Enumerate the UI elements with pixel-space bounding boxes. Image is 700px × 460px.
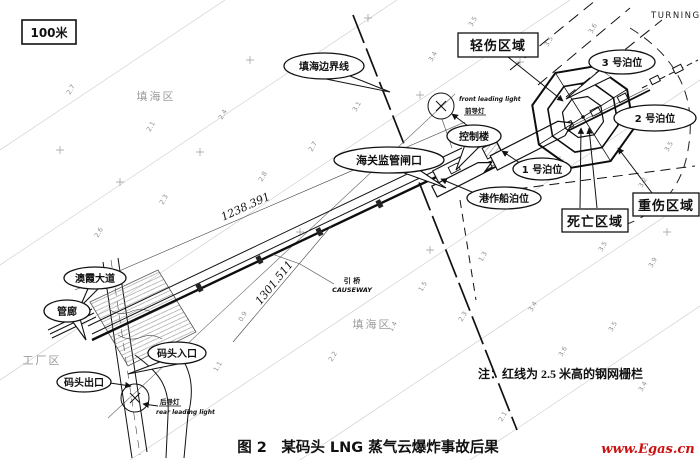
sounding-value: 3.9 — [647, 256, 659, 269]
sounding-value: 2.7 — [65, 83, 77, 96]
area-reclamation-mid: 填海区 — [353, 317, 392, 331]
sounding-value: 2.6 — [93, 226, 105, 239]
callout-wharf-exit: 码头出口 — [64, 376, 104, 389]
survey-cross — [416, 91, 424, 99]
survey-cross — [364, 14, 372, 22]
zone-light-injury: 轻伤区域 — [470, 38, 526, 54]
sounding-value: 3.6 — [557, 345, 569, 358]
site-plan-drawing: front leading light 前导灯 后导灯 rear leading… — [0, 0, 700, 460]
rear-leading-light-label-cn: 后导灯 — [160, 397, 180, 406]
callout-berth-1: 1 号泊位 — [522, 163, 562, 176]
callout-tug-berth: 港作船泊位 — [479, 192, 529, 205]
callout-berth-2: 2 号泊位 — [635, 112, 675, 125]
callout-pipe-rack: 管廊 — [57, 305, 77, 318]
survey-cross — [663, 228, 671, 236]
causeway-label-en: CAUSEWAY — [332, 286, 373, 294]
callout-berth-3: 3 号泊位 — [602, 56, 642, 69]
blast-center — [581, 115, 585, 119]
zone-serious-injury: 重伤区域 — [638, 198, 694, 214]
perimeter-fence-line — [92, 161, 470, 340]
mooring-dolphin — [650, 75, 661, 84]
blast-ring-radial — [555, 73, 583, 117]
survey-cross — [196, 148, 204, 156]
scale-label: 100米 — [30, 25, 68, 40]
rear-leading-light-label-en: rear leading light — [156, 409, 216, 416]
causeway-label-cn: 引 桥 — [344, 276, 361, 285]
front-leading-light-label-cn: 前导灯 — [465, 106, 485, 115]
sounding-value: 2.3 — [457, 310, 469, 323]
sounding-value: 3.4 — [427, 50, 439, 63]
figure-caption: 图 2 某码头 LNG 蒸气云爆炸事故后果 — [237, 438, 499, 456]
sounding-value: 2.1 — [145, 120, 157, 133]
area-reclamation-top: 填海区 — [137, 89, 176, 103]
sounding-value: 3.1 — [351, 100, 363, 113]
sounding-value: 3.6 — [587, 22, 599, 35]
survey-cross — [56, 146, 64, 154]
blast-ring-radial — [583, 117, 611, 161]
sounding-value: 2.8 — [257, 170, 269, 183]
callout-customs-gate: 海关监管闸口 — [356, 153, 422, 167]
callout-wharf-entrance: 码头入口 — [157, 347, 197, 360]
turning-label: TURNING — [650, 11, 700, 21]
dimension-trestle-length: 1238.391 — [219, 190, 272, 224]
sounding-value: 3.5 — [467, 15, 479, 28]
sounding-value: 0.9 — [237, 310, 249, 323]
sounding-value: 3.4 — [637, 380, 649, 393]
sounding-value: 3.5 — [597, 240, 609, 253]
callout-control-building: 控制楼 — [459, 130, 489, 143]
callout-reclamation-boundary: 填海边界线 — [299, 60, 349, 73]
callout-avenue: 澳霞大道 — [75, 272, 115, 285]
sounding-value: 2.3 — [158, 193, 170, 206]
zone-death: 死亡区域 — [567, 214, 623, 230]
leading-light-alignment-line — [108, 94, 455, 418]
light-symbol-icon — [436, 101, 446, 111]
sounding-value: 3.5 — [543, 35, 555, 48]
sounding-value: 3.5 — [607, 320, 619, 333]
sounding-value: 1.5 — [417, 280, 429, 293]
survey-cross — [116, 178, 124, 186]
sounding-value: 1.3 — [477, 250, 489, 263]
survey-cross — [426, 246, 434, 254]
watermark: www.Egas.cn — [601, 442, 694, 457]
sounding-value: 3.5 — [663, 140, 675, 153]
survey-cross — [246, 56, 254, 64]
sounding-value: 2.1 — [497, 410, 509, 423]
sounding-value: 2.7 — [307, 140, 319, 153]
area-factory: 工厂区 — [23, 354, 62, 367]
note-text: 注：红线为 2.5 米高的钢网栅栏 — [478, 366, 643, 381]
sounding-value: 1.1 — [212, 360, 224, 373]
mooring-dolphin — [673, 64, 684, 73]
sounding-value: 2.2 — [327, 350, 339, 363]
dimension-secondary-length: 1301.511 — [253, 258, 296, 307]
rear-leading-light: 后导灯 rear leading light — [121, 384, 216, 416]
figure-canvas: front leading light 前导灯 后导灯 rear leading… — [0, 0, 700, 460]
front-leading-light-label-en: front leading light — [459, 96, 522, 103]
sounding-value: 2.4 — [217, 108, 229, 121]
